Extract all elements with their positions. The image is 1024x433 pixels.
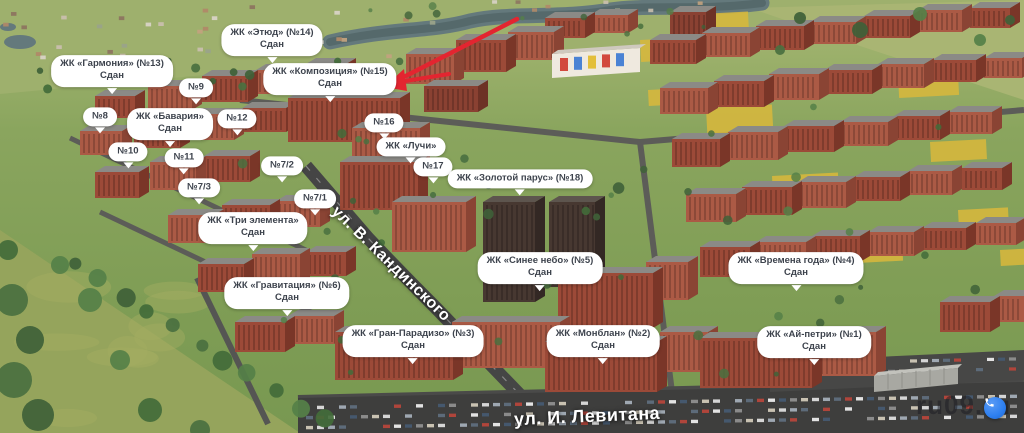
map-label-n10: №10 xyxy=(108,142,147,161)
map-label-text: Сдан xyxy=(556,341,651,353)
map-label-n7-3: №7/3 xyxy=(178,178,220,197)
map-label-zhk-zolotoy-parus: ЖК «Золотой парус» (№18) xyxy=(448,169,593,188)
call-button[interactable] xyxy=(984,397,1006,419)
map-label-text: ЖК «Лучи» xyxy=(386,140,437,152)
map-label-n7-2: №7/2 xyxy=(261,156,303,175)
map-label-n11: №11 xyxy=(165,148,204,167)
map-label-text: ЖК «Ай-петри» (№1) xyxy=(766,329,862,341)
map-label-n8: №8 xyxy=(83,107,117,126)
map-label-n9: №9 xyxy=(179,78,213,97)
map-label-text: №8 xyxy=(92,110,108,122)
map-label-text: №7/1 xyxy=(303,192,327,204)
map-label-text: №7/2 xyxy=(270,159,294,171)
map-label-text: Сдан xyxy=(230,40,313,52)
map-label-text: ЖК «Бавария» xyxy=(136,111,204,123)
map-label-zhk-etyud: ЖК «Этюд» (№14)Сдан xyxy=(221,24,322,56)
map-label-text: №17 xyxy=(422,160,443,172)
map-label-text: Сдан xyxy=(487,268,594,280)
map-label-text: ЖК «Монблан» (№2) xyxy=(556,328,651,340)
map-label-zhk-luchi: ЖК «Лучи» xyxy=(377,137,446,156)
map-label-zhk-gravitatsiya: ЖК «Гравитация» (№6)Сдан xyxy=(224,277,349,309)
masterplan-map: ЖК «Этюд» (№14)СданЖК «Гармония» (№13)Сд… xyxy=(0,0,1024,433)
map-label-text: Сдан xyxy=(352,341,475,353)
map-label-text: №12 xyxy=(226,112,247,124)
building-labels-layer: ЖК «Этюд» (№14)СданЖК «Гармония» (№13)Сд… xyxy=(0,0,1024,433)
map-label-text: ЖК «Времена года» (№4) xyxy=(737,255,854,267)
map-label-zhk-monblan: ЖК «Монблан» (№2)Сдан xyxy=(547,325,660,357)
map-label-text: ЖК «Синее небо» (№5) xyxy=(487,255,594,267)
map-label-n17: №17 xyxy=(413,157,452,176)
map-label-n16: №16 xyxy=(364,113,403,132)
map-label-text: Сдан xyxy=(233,293,340,305)
map-label-zhk-vremena-goda: ЖК «Времена года» (№4)Сдан xyxy=(728,252,863,284)
map-label-text: Сдан xyxy=(60,71,164,83)
map-label-text: ЖК «Гармония» (№13) xyxy=(60,58,164,70)
map-label-text: №11 xyxy=(174,151,195,163)
map-label-zhk-kompozitsiya: ЖК «Композиция» (№15)Сдан xyxy=(263,63,396,95)
map-label-text: ЖК «Золотой парус» (№18) xyxy=(457,172,584,184)
map-label-text: №9 xyxy=(188,81,204,93)
map-label-text: №7/3 xyxy=(187,181,211,193)
map-label-text: ЖК «Гран-Парадизо» (№3) xyxy=(352,328,475,340)
map-label-zhk-garmoniya: ЖК «Гармония» (№13)Сдан xyxy=(51,55,173,87)
map-label-text: ЖК «Гравитация» (№6) xyxy=(233,280,340,292)
map-label-text: Сдан xyxy=(766,342,862,354)
map-label-zhk-sinee-nebo: ЖК «Синее небо» (№5)Сдан xyxy=(478,252,603,284)
map-label-text: Сдан xyxy=(272,79,387,91)
phone-icon xyxy=(984,397,995,408)
map-label-text: №10 xyxy=(117,145,138,157)
map-label-zhk-ay-petri: ЖК «Ай-петри» (№1)Сдан xyxy=(757,326,871,358)
map-label-zhk-tri-elementa: ЖК «Три элемента»Сдан xyxy=(198,212,307,244)
map-label-text: ЖК «Этюд» (№14) xyxy=(230,27,313,39)
map-label-n12: №12 xyxy=(217,109,256,128)
map-label-n7-1: №7/1 xyxy=(294,189,336,208)
map-label-text: Сдан xyxy=(207,228,298,240)
map-label-text: Сдан xyxy=(737,268,854,280)
map-label-text: ЖК «Композиция» (№15) xyxy=(272,66,387,78)
map-label-text: №16 xyxy=(373,116,394,128)
map-label-zhk-bavariya: ЖК «Бавария»Сдан xyxy=(127,108,213,140)
map-label-text: Сдан xyxy=(136,124,204,136)
map-label-zhk-gran-paradizo: ЖК «Гран-Парадизо» (№3)Сдан xyxy=(343,325,484,357)
map-label-text: ЖК «Три элемента» xyxy=(207,215,298,227)
